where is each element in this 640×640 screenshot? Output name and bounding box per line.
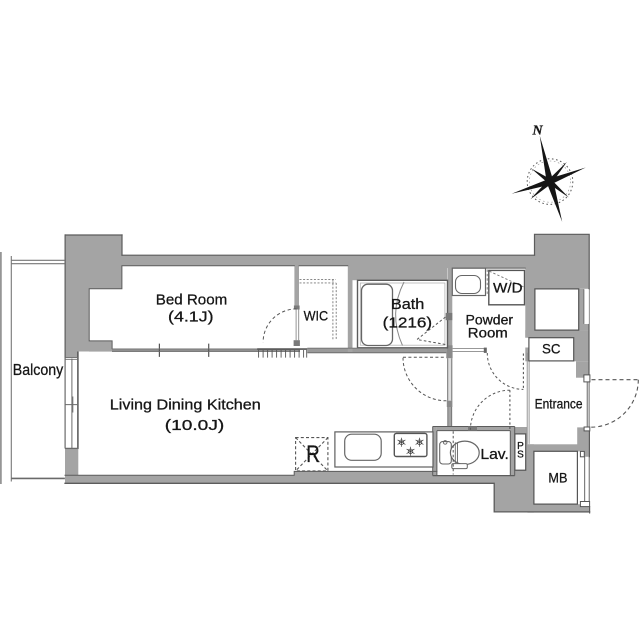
svg-text:(10.0J): (10.0J) [165,418,225,434]
svg-text:R: R [306,441,320,468]
svg-text:Balcony: Balcony [13,362,64,379]
svg-text:(4.1J): (4.1J) [168,309,214,325]
svg-text:WIC: WIC [304,307,329,323]
svg-text:S: S [517,450,524,461]
svg-text:Room: Room [468,326,508,341]
svg-text:Lav.: Lav. [480,446,509,463]
svg-text:Living Dining Kitchen: Living Dining Kitchen [110,398,261,414]
svg-text:SC: SC [542,341,561,357]
svg-text:Entrance: Entrance [535,396,583,411]
svg-text:(1216): (1216) [383,316,433,332]
svg-text:W/D: W/D [493,280,523,295]
svg-text:N: N [532,124,544,139]
svg-text:Bed Room: Bed Room [156,291,228,308]
svg-text:Bath: Bath [391,297,425,313]
svg-text:MB: MB [548,469,567,485]
